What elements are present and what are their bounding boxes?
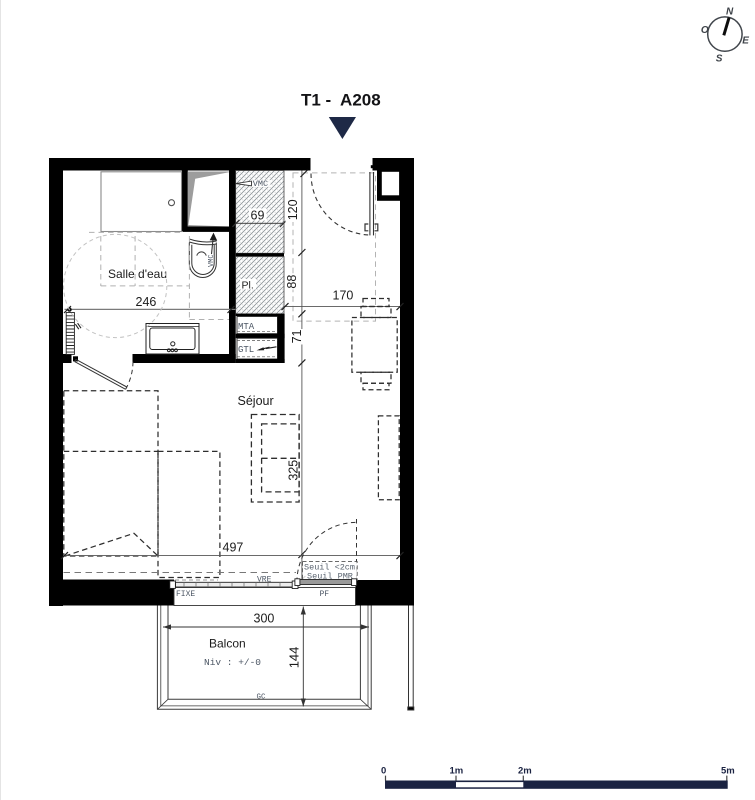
svg-text:GC: GC [257,694,267,702]
svg-text:VMC: VMC [253,179,268,189]
svg-text:MTA: MTA [238,322,255,332]
svg-text:VRE: VRE [257,576,272,585]
svg-text:E: E [742,35,749,46]
svg-text:PF: PF [320,590,330,599]
svg-text:69: 69 [251,208,265,222]
svg-text:497: 497 [223,540,244,554]
svg-text:170: 170 [333,288,354,302]
svg-text:2m: 2m [518,766,532,777]
svg-text:Balcon: Balcon [209,636,246,650]
svg-text:N: N [726,6,734,17]
svg-text:GTL: GTL [238,345,254,355]
svg-text:VMC: VMC [208,254,216,267]
svg-text:Pl.: Pl. [242,279,254,291]
svg-text:5m: 5m [721,766,735,777]
svg-text:T1 - A208: T1 - A208 [301,91,381,110]
svg-text:0: 0 [381,766,386,777]
svg-text:71: 71 [290,329,304,343]
svg-text:Niv : +/-0: Niv : +/-0 [204,657,261,668]
svg-text:300: 300 [254,611,275,625]
svg-text:246: 246 [136,295,157,309]
svg-text:Séjour: Séjour [238,394,274,408]
svg-text:88: 88 [285,275,299,289]
svg-text:1m: 1m [450,766,464,777]
svg-text:120: 120 [286,199,300,220]
svg-text:Salle d'eau: Salle d'eau [108,267,167,281]
svg-text:O: O [701,25,709,36]
svg-text:144: 144 [287,647,302,669]
svg-text:S: S [716,54,723,65]
svg-text:FIXE: FIXE [176,590,195,599]
